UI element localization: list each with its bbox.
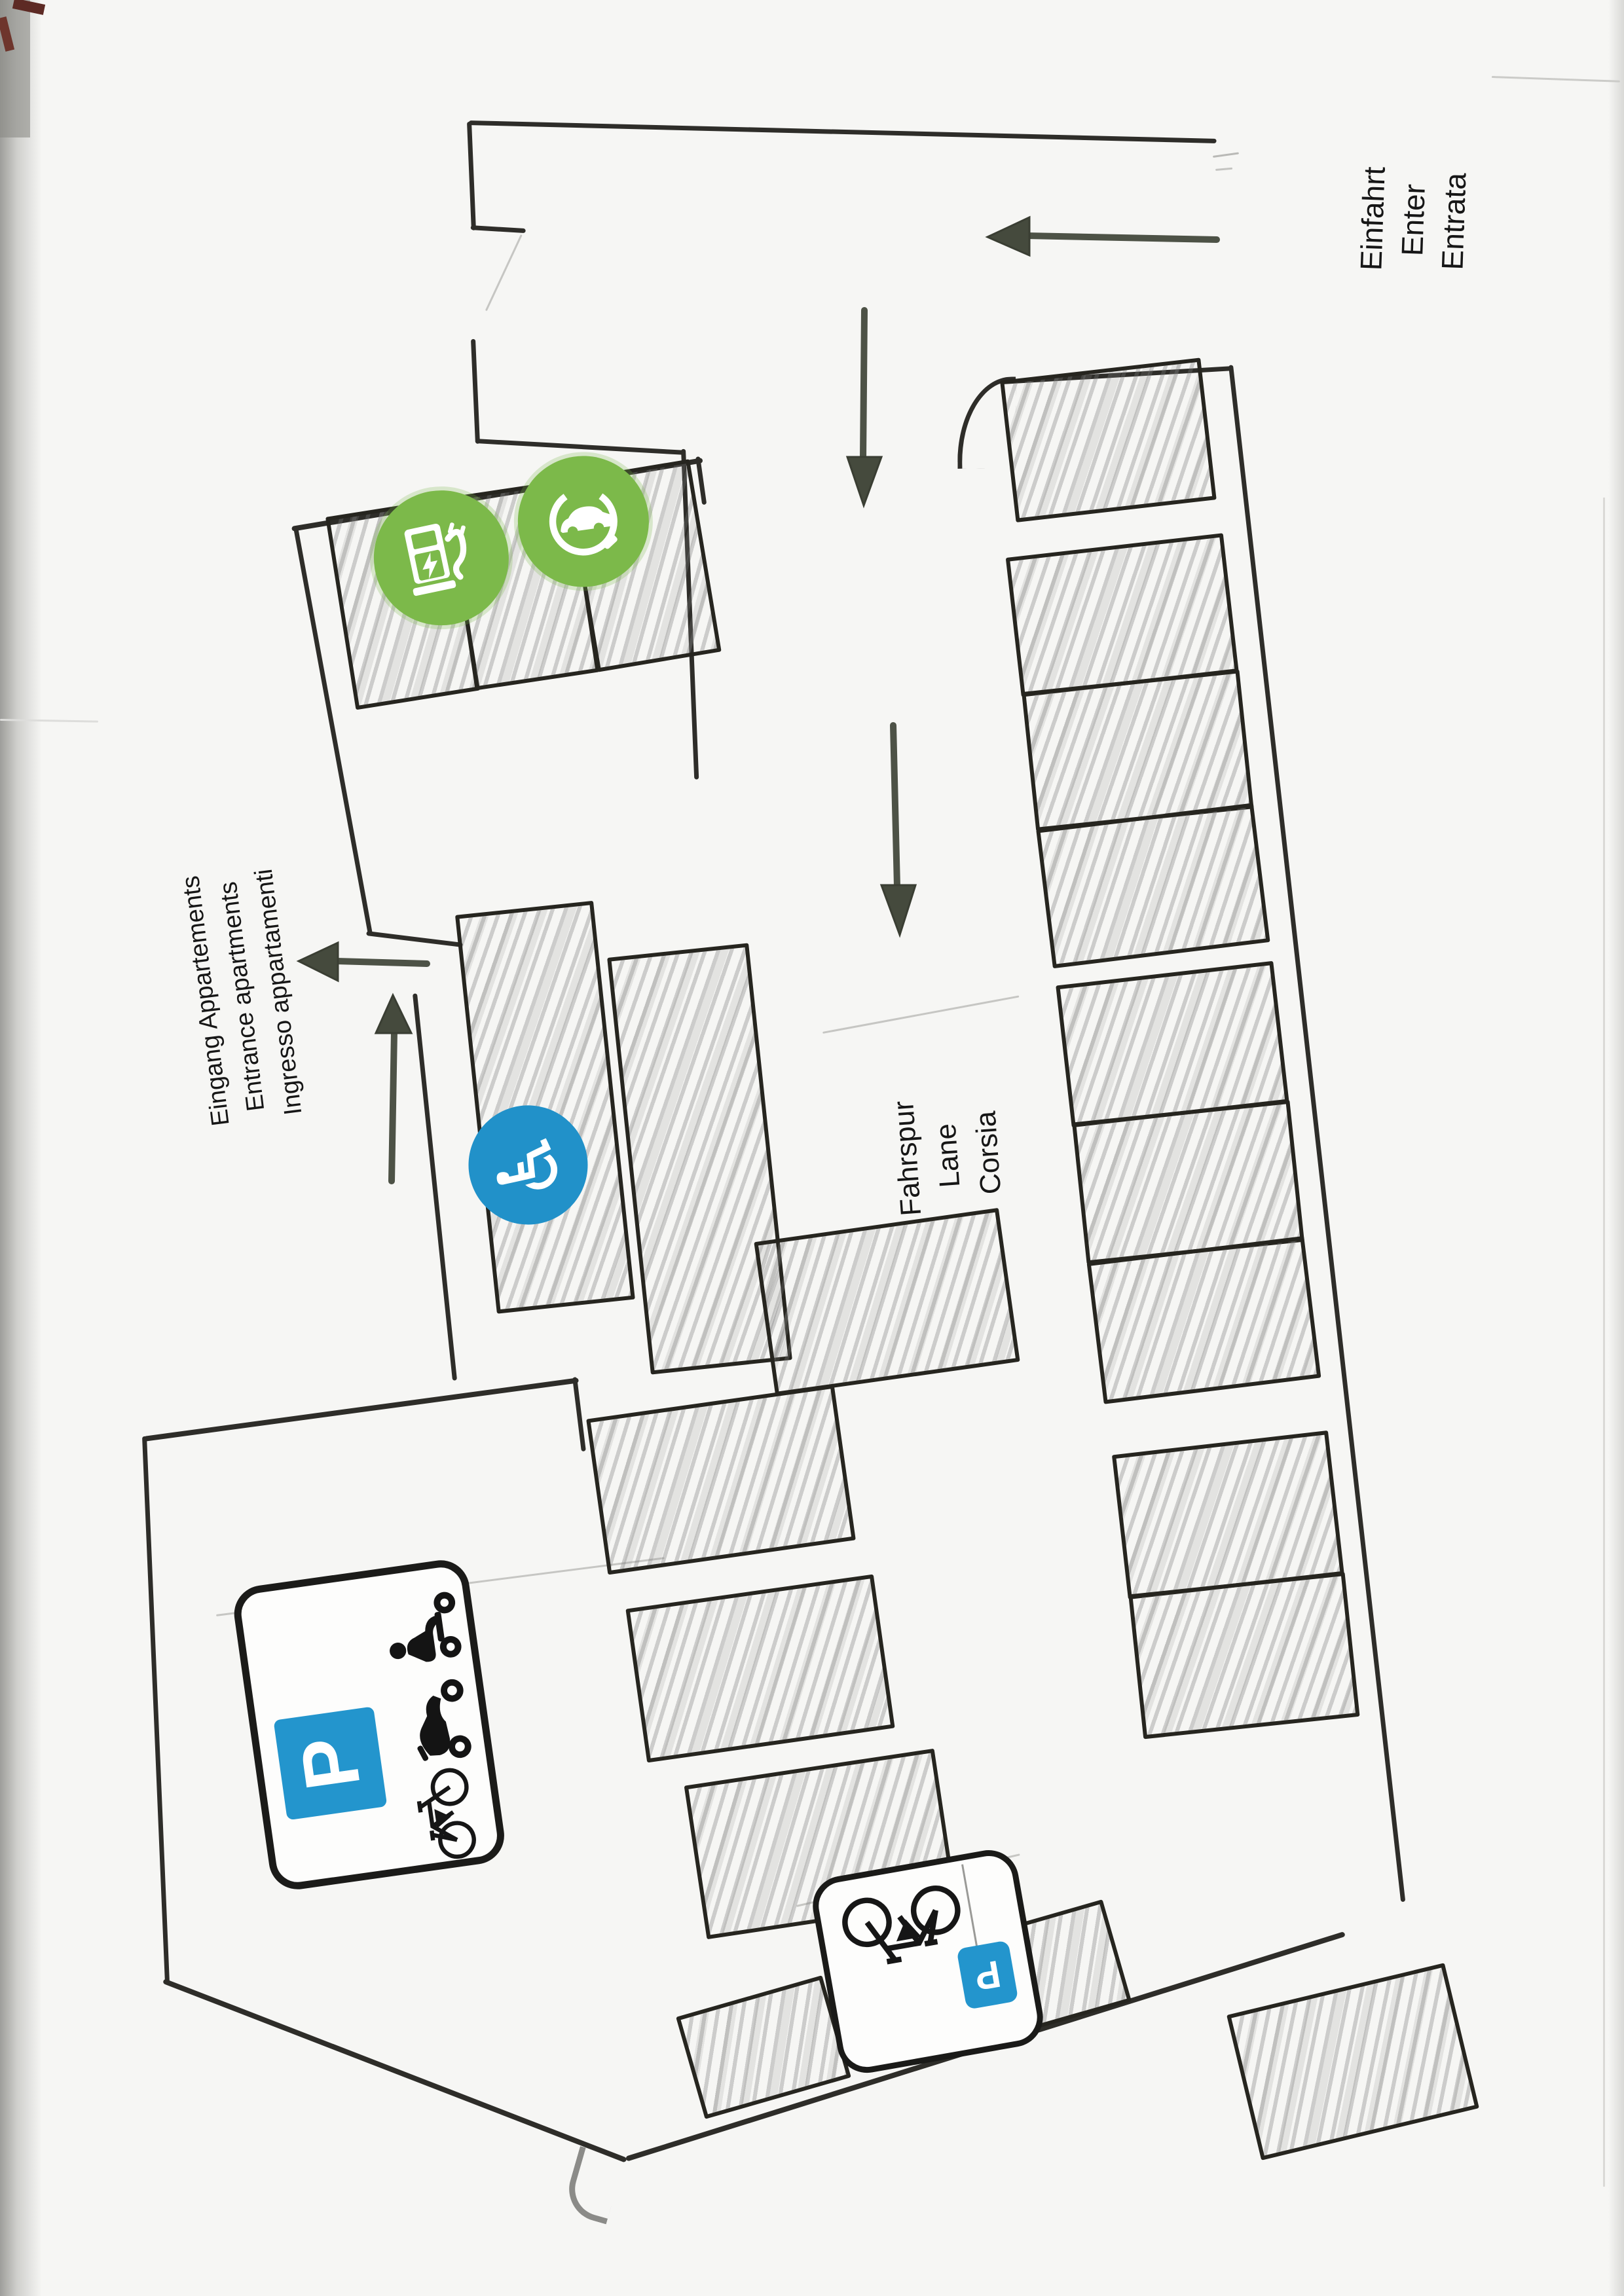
parking-stall [1128,1572,1359,1739]
scooter-icon [377,1580,470,1675]
scan-edge-left [0,0,42,2296]
stall-group [1112,1430,1360,1740]
pen-hook-mark [561,2146,625,2225]
parking-stall [1056,961,1289,1127]
wall-segment [475,439,685,455]
flow-down-arrow-icon [872,721,922,941]
ev-parking-block [325,460,720,710]
parking-p-icon: P [273,1706,387,1820]
parking-stall [754,1208,1020,1396]
entrance-label: Einfahrt Enter Entrata [1350,139,1477,301]
motorcycle-icon [387,1672,480,1772]
wall-segment-top [469,120,1217,143]
stall-group [1000,357,1217,522]
pencil-line [1215,168,1232,171]
wall-segment [471,225,526,233]
wheelchair-icon: ♿ [462,1099,593,1230]
bike-parking-sign: P [808,1846,1048,2078]
parking-stall [625,1575,895,1763]
wall-segment-zone-left [142,1436,170,1983]
entry-left-arrow-icon [981,211,1223,266]
wall-segment [471,339,480,444]
wall-segment-zone-top [143,1377,579,1442]
parking-p-icon: P [956,1940,1018,2009]
bicycle-icon [394,1761,485,1869]
parking-stall [1087,1236,1321,1404]
parking-stall [1000,357,1217,522]
parking-stall [1036,803,1270,968]
vehicle-parking-sign: P [231,1557,508,1893]
pencil-line [1492,76,1620,82]
wall-segment [572,1377,586,1451]
flow-down-arrow-icon [841,306,888,511]
parking-stall [1112,1430,1344,1599]
wall-segment [467,122,476,230]
wall-segment-bottom [162,1978,627,2163]
apartment-up-arrow-icon [368,990,423,1186]
pencil-line [485,234,523,311]
wall-segment [695,456,707,505]
apartments-entrance-label: Eingang Appartements Entrance apartments… [171,853,314,1139]
scan-edge-right [1608,0,1624,2296]
pencil-line [1213,152,1239,158]
stall-group [1006,533,1270,968]
bicycle-icon [834,1878,976,1991]
parking-stall [586,1385,856,1575]
scan-edge-right-line [1603,498,1605,2187]
pencil-line [822,995,1019,1034]
apartment-left-arrow-icon [293,935,432,989]
stall-group [1056,961,1321,1404]
